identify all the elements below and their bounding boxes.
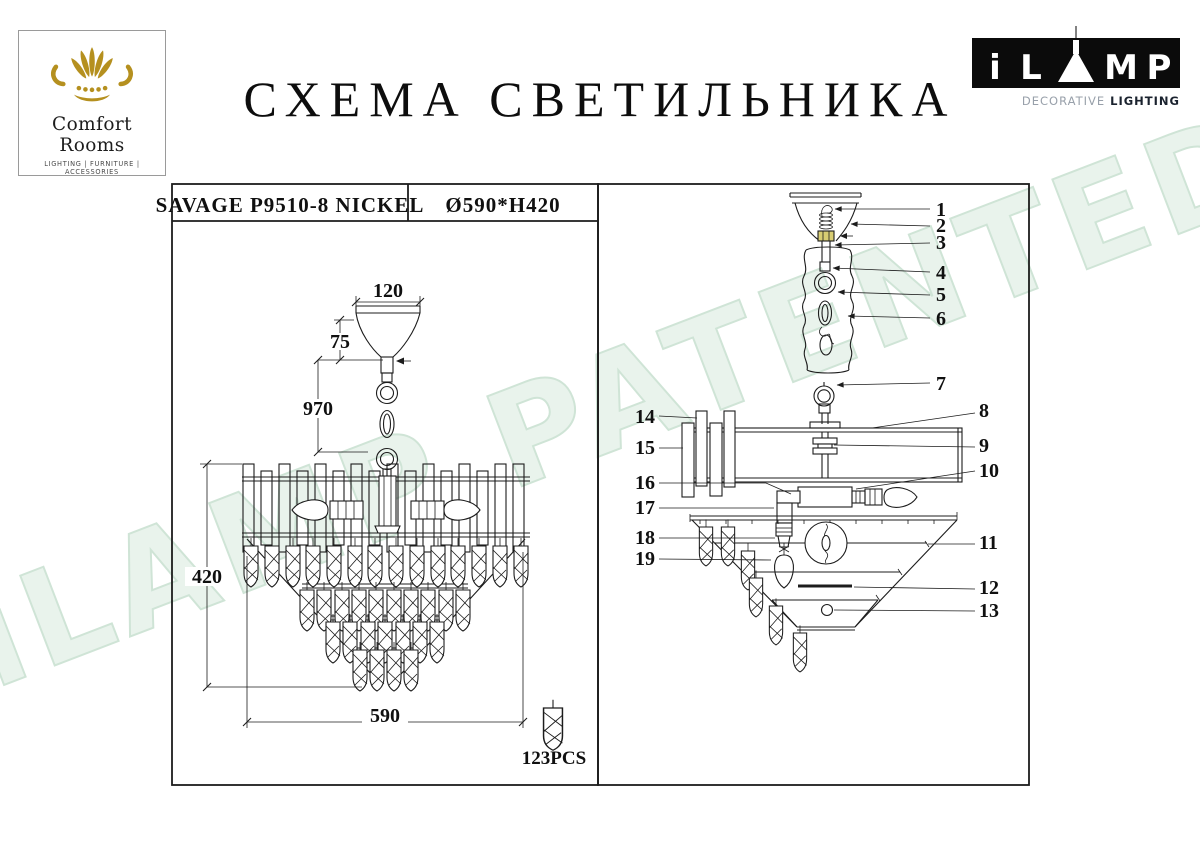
- brand-logo-box: Comfort Rooms LIGHTING | FURNITURE | ACC…: [18, 30, 166, 176]
- dimension-120: 120: [352, 280, 424, 307]
- schematic-page: iLAMP PATENTED Comfort Rooms LIGHTING | …: [0, 0, 1200, 849]
- part-number-3: 3: [936, 232, 946, 254]
- crown-icon: [33, 34, 151, 116]
- svg-text:590: 590: [370, 705, 400, 727]
- part-number-8: 8: [979, 400, 989, 422]
- ilamp-letter-l: L: [1020, 48, 1042, 88]
- ilamp-logo: i L M P DECORATIVELIGHTING: [971, 24, 1183, 120]
- suspension-chain: [377, 373, 398, 477]
- part-number-4: 4: [936, 262, 946, 284]
- svg-text:75: 75: [330, 331, 350, 353]
- chandelier-body: [242, 464, 530, 552]
- spring-coil: [820, 213, 833, 229]
- part-number-6: 6: [936, 308, 946, 330]
- ceiling-hook: [822, 205, 833, 216]
- svg-text:420: 420: [192, 566, 222, 588]
- left-panel-drawing: 120 75: [185, 280, 586, 769]
- part-number-7: 7: [936, 373, 946, 395]
- candle-bulb-right: [411, 500, 480, 520]
- crystal-cascade: [244, 538, 528, 691]
- right-panel-drawing: 1 2 3 4 5 6 7 8 9 10 11 12 13 14 15 16 1…: [635, 193, 999, 672]
- brand-name: Comfort Rooms: [19, 114, 165, 156]
- canopy: [356, 306, 420, 373]
- bottom-plate-hole: [822, 605, 833, 616]
- part-number-15: 15: [635, 437, 655, 459]
- part-number-13: 13: [979, 600, 999, 622]
- side-crystal-rods: [682, 411, 735, 497]
- horizontal-bulb: [884, 488, 917, 508]
- size-label: Ø590*H420: [445, 193, 560, 217]
- crystal-count-label: 123PCS: [522, 748, 586, 769]
- socket-housing: [798, 487, 852, 507]
- page-title: СХЕМА СВЕТИЛЬНИКА: [205, 70, 995, 128]
- cone-frame: [690, 512, 957, 672]
- panel-frames: [172, 184, 1029, 785]
- ilamp-letter-i: i: [989, 48, 1001, 88]
- dimension-75: 75: [318, 316, 383, 364]
- part-number-19: 19: [635, 548, 655, 570]
- part-number-12: 12: [979, 577, 999, 599]
- cord-detail-circle: [805, 522, 847, 564]
- svg-text:120: 120: [373, 280, 403, 302]
- crystal-count: 123PCS: [522, 700, 586, 769]
- chain-connector: [820, 262, 830, 271]
- brand-tagline: LIGHTING | FURNITURE | ACCESSORIES: [19, 160, 165, 176]
- part-number-10: 10: [979, 460, 999, 482]
- svg-text:970: 970: [303, 398, 333, 420]
- hub: [813, 438, 837, 444]
- part-number-9: 9: [979, 435, 989, 457]
- part-number-5: 5: [936, 284, 946, 306]
- part-number-16: 16: [635, 472, 655, 494]
- ilamp-subtitle: DECORATIVELIGHTING: [1022, 94, 1180, 108]
- part-number-18: 18: [635, 527, 655, 549]
- exploded-chain-cover: [803, 247, 854, 424]
- connector-nut: [818, 231, 834, 241]
- dimension-970: 970: [296, 356, 368, 456]
- ilamp-letter-p: P: [1147, 48, 1172, 88]
- part-number-14: 14: [635, 406, 655, 428]
- part-number-11: 11: [979, 532, 998, 554]
- model-label: SAVAGE P9510-8 NICKEL: [156, 193, 425, 217]
- center-column: [379, 476, 396, 526]
- part-number-17: 17: [635, 497, 655, 519]
- cone-crystal-drops: [699, 519, 806, 672]
- candle-bulb-left: [292, 500, 363, 520]
- ilamp-letter-m: M: [1104, 48, 1138, 88]
